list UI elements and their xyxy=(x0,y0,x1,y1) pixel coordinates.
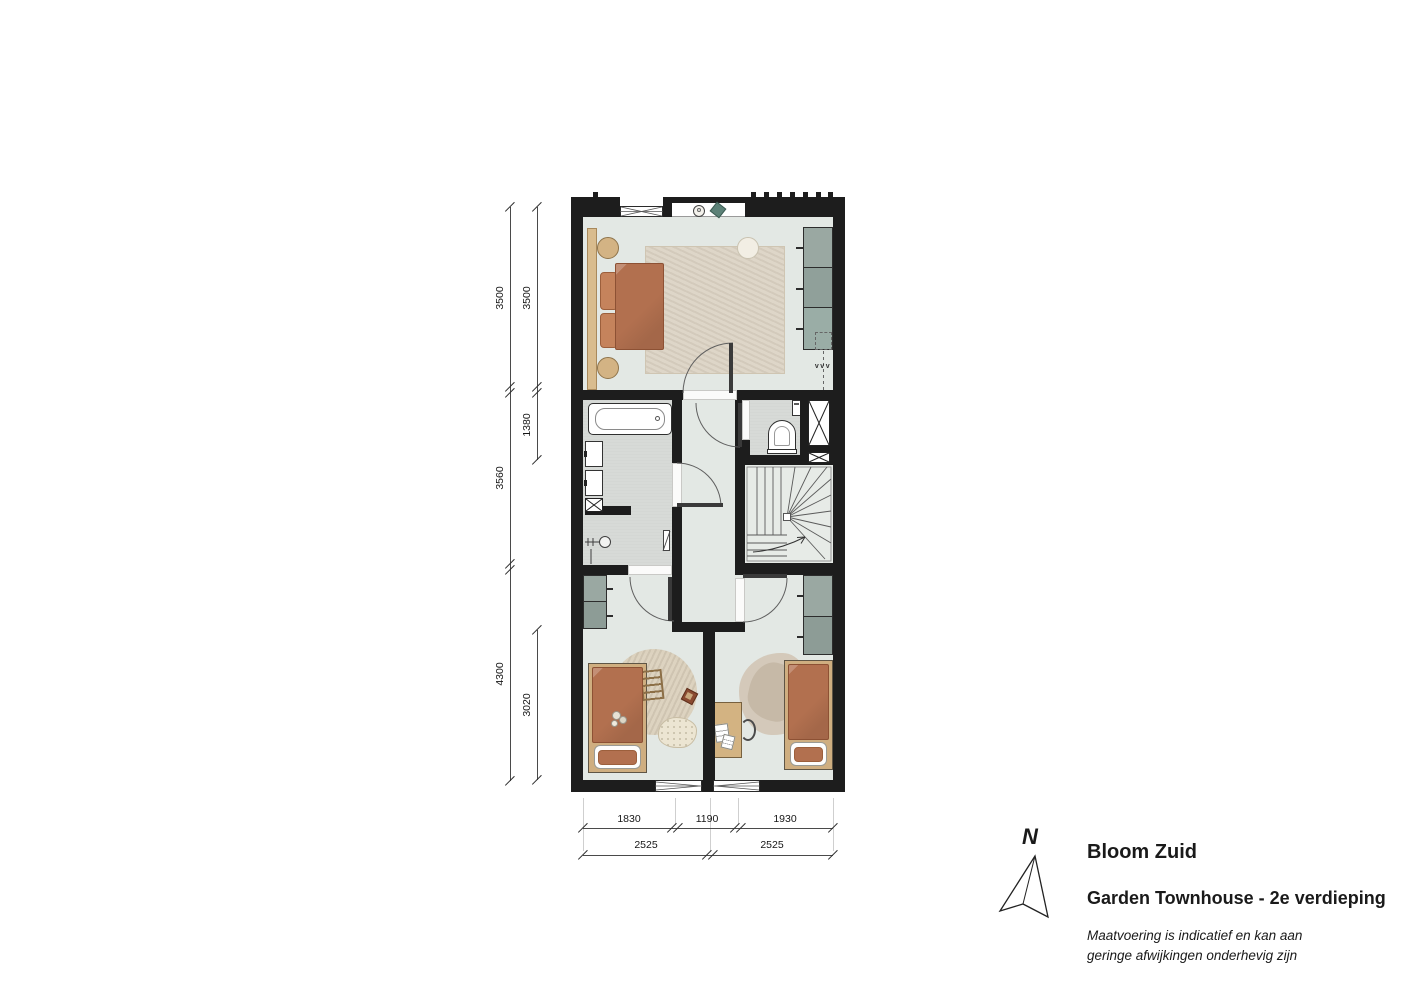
door-leaf-wc xyxy=(738,403,742,447)
dimension-line-left-inner-b xyxy=(537,630,538,780)
shaft-small xyxy=(808,452,830,463)
window-bottom-right xyxy=(713,780,760,792)
wall xyxy=(672,622,745,632)
closet-rod-tick xyxy=(607,615,613,617)
wall xyxy=(745,197,845,217)
desk-chair xyxy=(740,719,756,741)
shelf-niche xyxy=(672,203,745,217)
dimension-line-bottom-2 xyxy=(583,855,833,856)
toilet-cistern xyxy=(767,449,797,454)
headboard-panel xyxy=(587,228,597,390)
wall xyxy=(571,197,583,792)
dimension-line-left-inner-a xyxy=(537,207,538,460)
floor-title: Garden Townhouse - 2e verdieping xyxy=(1087,888,1386,909)
door-leaf-bathroom xyxy=(677,503,723,507)
dim-left-outer-2: 3560 xyxy=(494,466,506,489)
wardrobe-rod-tick xyxy=(796,288,803,290)
door-leaf-bedroom-right xyxy=(743,574,787,578)
wall xyxy=(672,507,682,575)
ladder-toy xyxy=(639,669,664,701)
wall xyxy=(833,197,845,792)
facade-tooth xyxy=(816,192,821,197)
closet-left-section-2 xyxy=(583,601,607,629)
closet-left-section-1 xyxy=(583,575,607,602)
wall xyxy=(760,780,833,792)
dim-left-inner-2: 1380 xyxy=(521,413,533,436)
vent-label: vvv xyxy=(812,363,834,370)
page: vvv xyxy=(0,0,1415,1000)
disclaimer-line-1: Maatvoering is indicatief en kan aan xyxy=(1087,926,1302,946)
bathroom-radiator xyxy=(663,530,670,551)
door-opening-bedroom-right xyxy=(735,578,745,622)
nightstand-top xyxy=(597,237,619,259)
closet-rod-tick xyxy=(797,636,803,638)
dim-left-outer-3: 4300 xyxy=(494,662,506,685)
bed-decor-flower xyxy=(619,716,627,724)
dim-bottom2-1: 2525 xyxy=(634,839,657,851)
bed-right-pillow xyxy=(794,747,823,762)
north-arrow-icon xyxy=(995,840,1055,925)
dim-left-outer-1: 3500 xyxy=(494,286,506,309)
floor-plan: vvv xyxy=(571,197,845,792)
dimension-line-left-outer xyxy=(510,207,511,781)
closet-rod-tick xyxy=(797,595,803,597)
closet-rod-tick xyxy=(607,588,613,590)
bed-left-pillow xyxy=(598,750,637,765)
dim-bottom1-3: 1930 xyxy=(773,813,796,825)
door-opening-bedroom-left xyxy=(628,565,672,575)
wall xyxy=(702,780,713,792)
bed-left-duvet xyxy=(592,667,643,743)
dim-extension xyxy=(738,798,739,824)
facade-tooth xyxy=(751,192,756,197)
wall xyxy=(583,780,655,792)
dim-bottom2-2: 2525 xyxy=(760,839,783,851)
dim-bottom1-1: 1830 xyxy=(617,813,640,825)
sink-2 xyxy=(585,470,603,496)
sink-1 xyxy=(585,441,603,467)
door-opening-wc xyxy=(742,400,750,440)
dimension-line-bottom-1 xyxy=(583,828,833,829)
sink-2-tap xyxy=(584,480,587,486)
facade-tooth xyxy=(593,192,598,197)
master-rug xyxy=(645,246,785,374)
nightstand-bottom xyxy=(597,357,619,379)
vent-dashed-line xyxy=(823,351,824,390)
wall xyxy=(703,632,715,780)
wardrobe-rod-tick xyxy=(796,328,803,330)
bathroom-shaft-box xyxy=(585,498,603,512)
project-title: Bloom Zuid xyxy=(1087,841,1197,864)
facade-tooth xyxy=(764,192,769,197)
facade-tooth xyxy=(828,192,833,197)
wall xyxy=(583,565,628,575)
wardrobe-section-1 xyxy=(803,227,833,268)
window-bottom-left xyxy=(655,780,702,792)
closet-right-section-1 xyxy=(803,575,833,617)
window-top xyxy=(620,206,663,217)
wall xyxy=(583,390,683,400)
dim-left-inner-1: 3500 xyxy=(521,286,533,309)
dim-bottom1-2: 1190 xyxy=(696,813,719,825)
dim-extension xyxy=(675,798,676,824)
stair-newel xyxy=(783,513,791,521)
wardrobe-rod-tick xyxy=(796,247,803,249)
pouf xyxy=(737,237,759,259)
wardrobe-section-2 xyxy=(803,267,833,308)
bathtub-drain xyxy=(655,416,660,421)
sink-1-tap xyxy=(584,451,587,457)
disclaimer-line-2: geringe afwijkingen onderhevig zijn xyxy=(1087,946,1302,966)
facade-tooth xyxy=(777,192,782,197)
facade-tooth xyxy=(803,192,808,197)
dim-left-inner-3: 3020 xyxy=(521,693,533,716)
door-leaf-master xyxy=(729,343,733,393)
toilet-inner xyxy=(774,426,790,446)
door-leaf-bedroom-left xyxy=(668,577,672,621)
wall xyxy=(571,197,620,217)
closet-right-section-2 xyxy=(803,616,833,655)
door-opening-bathroom xyxy=(672,463,682,507)
shaft-tall xyxy=(808,400,830,446)
master-bed-duvet xyxy=(615,263,664,350)
bed-decor-flower xyxy=(611,720,618,727)
wall xyxy=(672,400,682,463)
disclaimer-text: Maatvoering is indicatief en kan aan ger… xyxy=(1087,926,1302,967)
wall xyxy=(663,197,672,217)
decor-plant-swirl xyxy=(697,208,701,212)
beanbag xyxy=(658,717,697,748)
bed-right-duvet xyxy=(788,664,829,740)
facade-tooth xyxy=(790,192,795,197)
vent-unit-dashed xyxy=(815,332,832,350)
